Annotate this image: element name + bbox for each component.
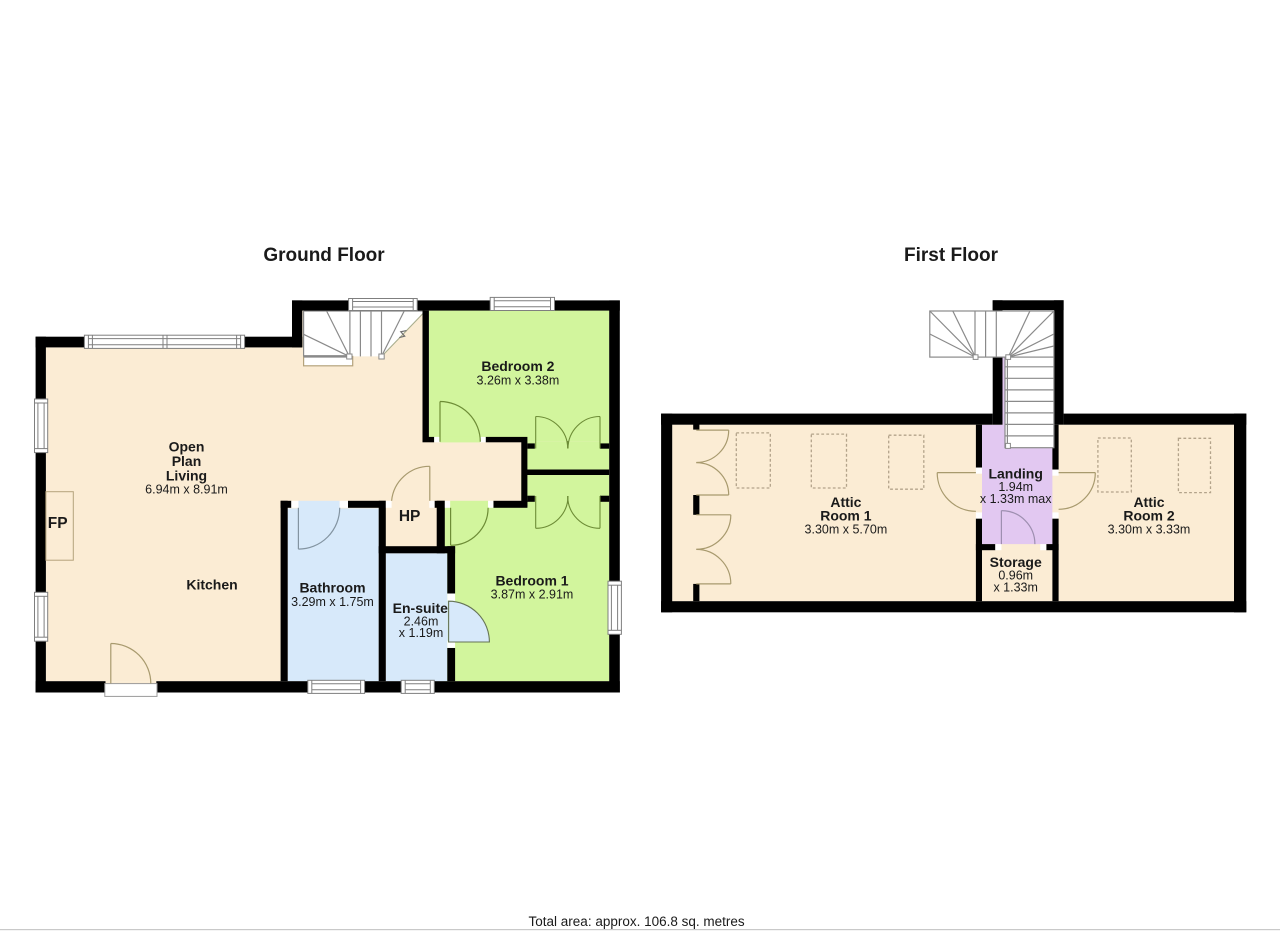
svg-text:Bathroom: Bathroom	[299, 580, 365, 596]
svg-text:Living: Living	[166, 468, 207, 484]
svg-text:Room 1: Room 1	[820, 508, 872, 524]
svg-text:x 1.33m: x 1.33m	[993, 581, 1037, 595]
svg-text:HP: HP	[399, 508, 421, 525]
svg-text:3.30m x 3.33m: 3.30m x 3.33m	[1108, 523, 1191, 537]
svg-text:x 1.19m: x 1.19m	[399, 626, 443, 640]
svg-text:6.94m x 8.91m: 6.94m x 8.91m	[145, 483, 228, 497]
svg-text:En-suite: En-suite	[393, 600, 448, 616]
svg-text:3.26m x 3.38m: 3.26m x 3.38m	[477, 374, 560, 388]
svg-text:Bedroom 1: Bedroom 1	[495, 573, 568, 589]
svg-text:Kitchen: Kitchen	[186, 577, 237, 593]
svg-text:Ground Floor: Ground Floor	[263, 245, 385, 266]
svg-text:Total area: approx. 106.8 sq.: Total area: approx. 106.8 sq. metres	[529, 914, 745, 929]
svg-text:FP: FP	[48, 515, 68, 532]
svg-text:First Floor: First Floor	[904, 245, 999, 266]
svg-text:3.30m x 5.70m: 3.30m x 5.70m	[805, 523, 888, 537]
svg-text:3.29m x 1.75m: 3.29m x 1.75m	[291, 595, 374, 609]
svg-text:x 1.33m max: x 1.33m max	[980, 492, 1052, 506]
svg-text:Room 2: Room 2	[1123, 508, 1175, 524]
svg-text:Bedroom 2: Bedroom 2	[481, 358, 554, 374]
svg-text:3.87m x 2.91m: 3.87m x 2.91m	[491, 587, 574, 601]
